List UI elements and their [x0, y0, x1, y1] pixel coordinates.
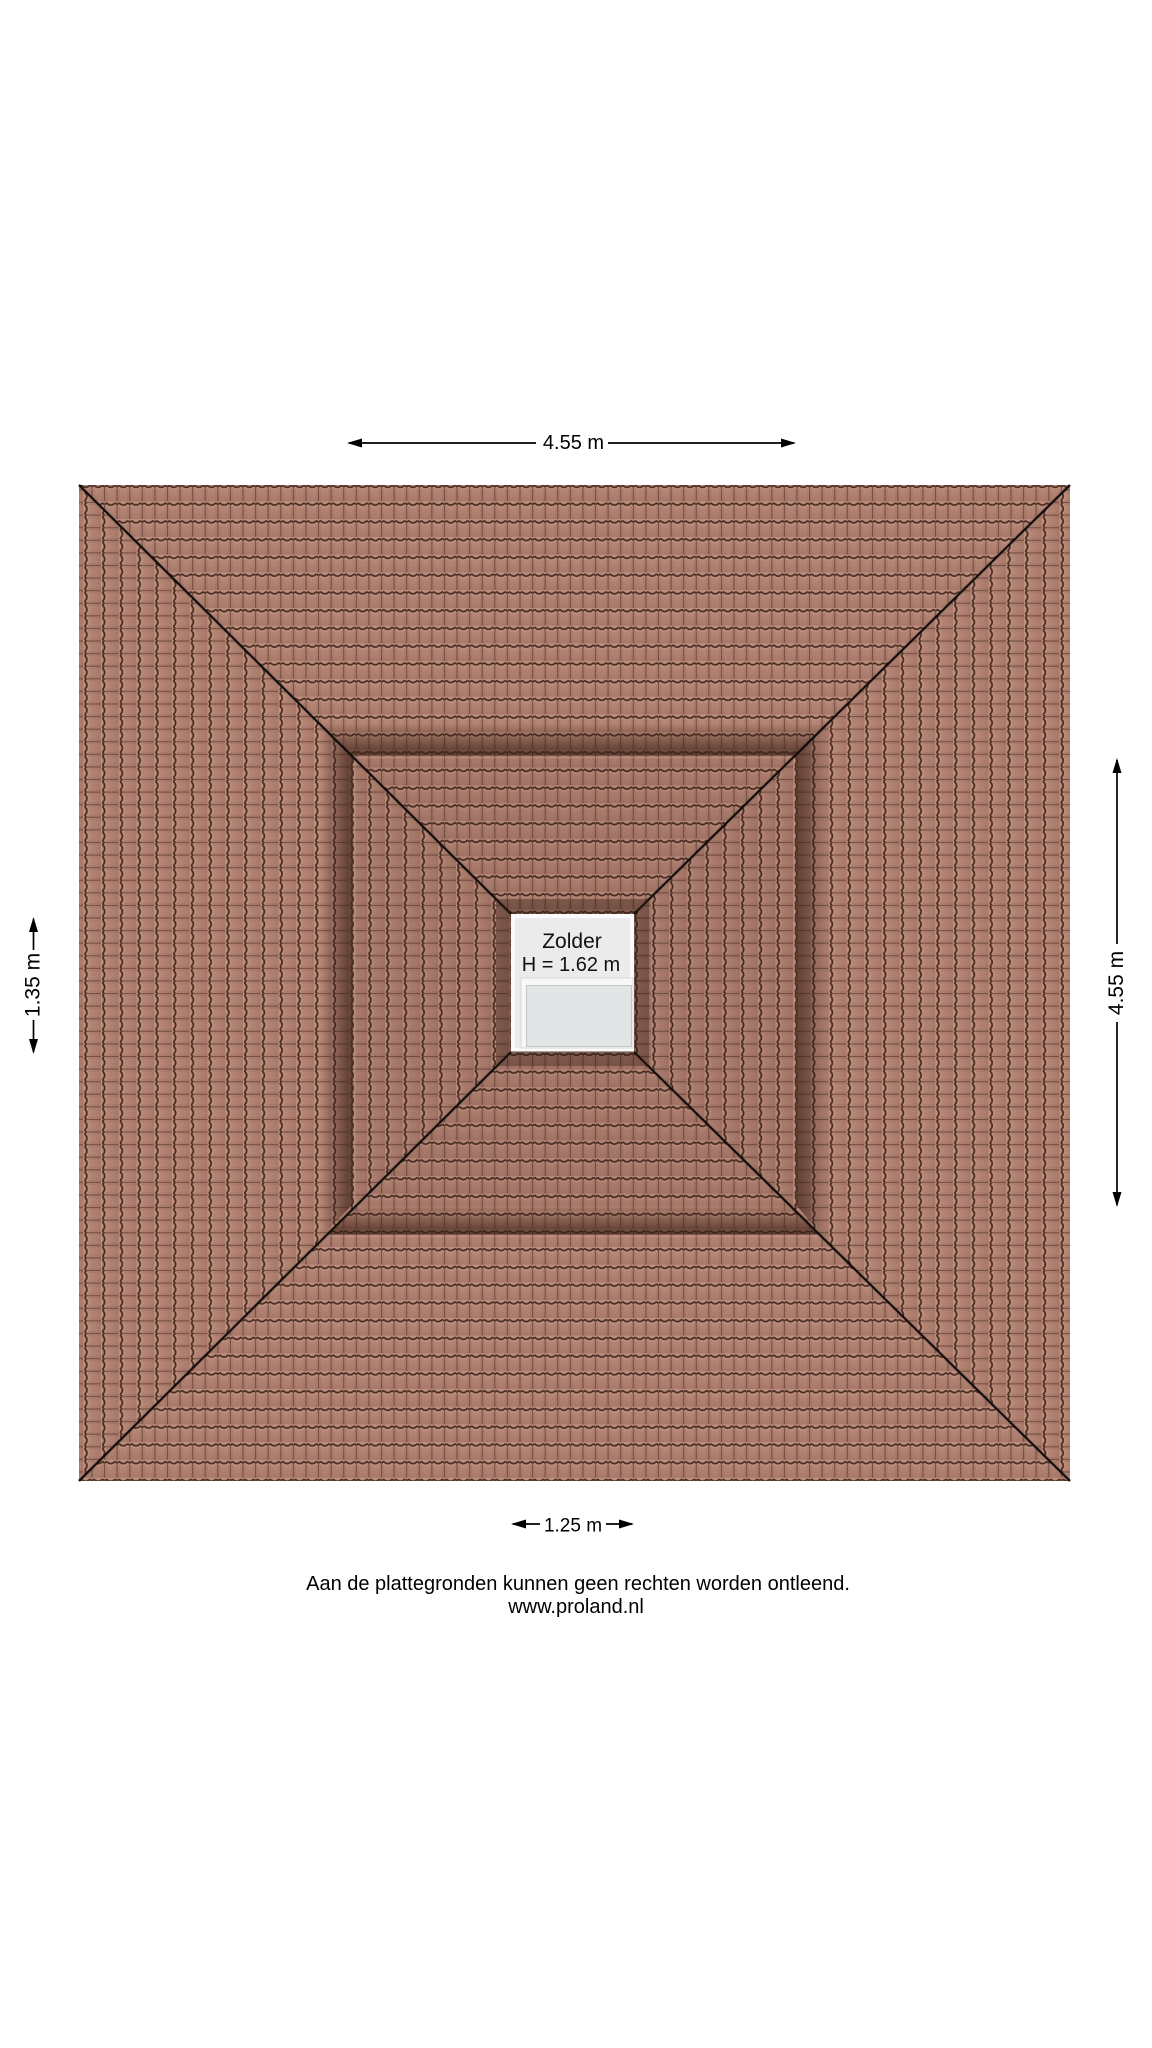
svg-text:1.25 m: 1.25 m: [544, 1516, 602, 1537]
svg-text:Zolder: Zolder: [542, 930, 602, 953]
svg-text:1.35 m: 1.35 m: [22, 953, 45, 1017]
svg-text:4.55 m: 4.55 m: [1105, 951, 1128, 1015]
svg-text:www.proland.nl: www.proland.nl: [507, 1596, 644, 1618]
svg-text:Aan de plattegronden kunnen ge: Aan de plattegronden kunnen geen rechten…: [306, 1573, 850, 1595]
svg-text:H = 1.62 m: H = 1.62 m: [522, 954, 620, 976]
svg-text:4.55 m: 4.55 m: [543, 432, 604, 454]
